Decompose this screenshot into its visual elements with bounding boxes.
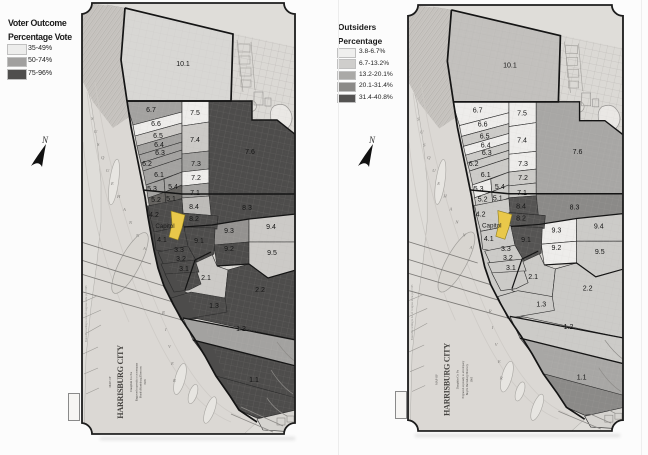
svg-text:5.1: 5.1 [166, 196, 176, 203]
svg-text:9.1: 9.1 [194, 238, 204, 245]
svg-text:Entered according to Act of Co: Entered according to Act of Congress in … [411, 284, 414, 340]
svg-text:R: R [172, 378, 176, 383]
svg-text:6.3: 6.3 [482, 150, 492, 157]
svg-text:7.1: 7.1 [517, 190, 527, 197]
svg-text:5.3: 5.3 [147, 186, 157, 193]
svg-text:7.5: 7.5 [190, 110, 200, 117]
svg-text:3.3: 3.3 [174, 247, 184, 254]
svg-text:7.6: 7.6 [573, 149, 583, 156]
svg-text:7.5: 7.5 [517, 111, 527, 118]
svg-text:10.1: 10.1 [176, 61, 190, 68]
svg-text:HARRISBURG CITY: HARRISBURG CITY [442, 343, 451, 416]
svg-text:E: E [497, 359, 501, 364]
svg-text:E: E [170, 361, 174, 366]
svg-text:9.4: 9.4 [266, 224, 276, 231]
svg-text:5.2: 5.2 [478, 197, 488, 204]
svg-text:6.3: 6.3 [155, 150, 165, 157]
svg-text:5.3: 5.3 [474, 186, 484, 193]
svg-text:6.4: 6.4 [481, 142, 491, 149]
svg-text:9.5: 9.5 [267, 250, 277, 257]
svg-text:7.6: 7.6 [245, 149, 255, 156]
svg-text:1.2: 1.2 [236, 326, 246, 333]
svg-text:H: H [116, 194, 121, 199]
svg-text:Capitol: Capitol [482, 222, 501, 229]
svg-text:HARRISBURG CITY: HARRISBURG CITY [116, 345, 125, 419]
svg-text:R: R [499, 376, 503, 381]
svg-text:2.2: 2.2 [255, 287, 265, 294]
svg-text:2.2: 2.2 [583, 286, 593, 293]
svg-text:E: E [110, 181, 114, 186]
svg-text:10.1: 10.1 [503, 62, 517, 69]
svg-text:3.1: 3.1 [506, 265, 516, 272]
svg-text:6.7: 6.7 [473, 108, 483, 115]
svg-text:Dauphin Co Pa: Dauphin Co Pa [455, 369, 459, 389]
svg-text:9.3: 9.3 [224, 228, 234, 235]
svg-text:4.2: 4.2 [476, 212, 486, 219]
svg-text:Entered according to Act of Co: Entered according to Act of Congress in … [85, 285, 88, 342]
svg-text:6.6: 6.6 [478, 122, 488, 129]
svg-text:1.3: 1.3 [536, 302, 546, 309]
svg-text:Boyd's Harrisburg Directory: Boyd's Harrisburg Directory [140, 365, 143, 397]
svg-text:A: A [448, 207, 452, 212]
svg-text:6.5: 6.5 [480, 133, 490, 140]
svg-text:9.4: 9.4 [594, 223, 604, 230]
svg-text:2.1: 2.1 [528, 274, 538, 281]
svg-text:3.2: 3.2 [503, 255, 513, 262]
svg-text:3.3: 3.3 [501, 246, 511, 253]
svg-text:7.4: 7.4 [190, 137, 200, 144]
svg-text:6.4: 6.4 [154, 142, 164, 149]
svg-text:8.2: 8.2 [189, 216, 199, 223]
svg-text:9.2: 9.2 [224, 246, 234, 253]
svg-text:8.3: 8.3 [242, 205, 252, 212]
svg-text:1905: 1905 [471, 376, 474, 382]
svg-text:8.4: 8.4 [189, 204, 199, 211]
svg-text:6.1: 6.1 [481, 172, 491, 179]
svg-text:4.1: 4.1 [157, 237, 167, 244]
svg-text:6.2: 6.2 [469, 161, 479, 168]
svg-text:5.1: 5.1 [493, 196, 503, 203]
svg-text:A: A [469, 245, 473, 250]
svg-text:H: H [442, 194, 447, 199]
svg-text:9.2: 9.2 [551, 245, 561, 252]
svg-text:Boyd's Harrisburg Directory: Boyd's Harrisburg Directory [466, 363, 469, 395]
svg-text:N: N [368, 135, 376, 145]
svg-text:4.1: 4.1 [484, 236, 494, 243]
svg-text:1905: 1905 [144, 379, 147, 385]
svg-text:3.2: 3.2 [176, 256, 186, 263]
svg-text:7.2: 7.2 [518, 175, 528, 182]
svg-text:8.2: 8.2 [516, 216, 526, 223]
svg-text:4.2: 4.2 [149, 212, 159, 219]
svg-text:5.4: 5.4 [168, 184, 178, 191]
svg-text:R: R [161, 310, 165, 315]
svg-text:6.6: 6.6 [151, 121, 161, 128]
svg-text:1.1: 1.1 [577, 375, 587, 382]
svg-text:7.3: 7.3 [191, 161, 201, 168]
svg-text:R: R [488, 308, 492, 313]
svg-text:Dauphin Co Pa: Dauphin Co Pa [129, 372, 133, 392]
svg-text:6.2: 6.2 [142, 161, 152, 168]
svg-text:6.5: 6.5 [153, 133, 163, 140]
svg-text:1.3: 1.3 [209, 303, 219, 310]
svg-text:1.1: 1.1 [249, 377, 259, 384]
svg-text:7.1: 7.1 [190, 190, 200, 197]
svg-text:6.7: 6.7 [146, 107, 156, 114]
svg-text:7.3: 7.3 [518, 161, 528, 168]
svg-text:Capitol: Capitol [155, 223, 174, 230]
svg-text:2.1: 2.1 [201, 275, 211, 282]
svg-text:MAP OF: MAP OF [108, 376, 112, 387]
svg-text:7.2: 7.2 [191, 175, 201, 182]
svg-text:Engraved expressly to accompan: Engraved expressly to accompany [136, 362, 139, 401]
svg-text:6.1: 6.1 [154, 172, 164, 179]
svg-text:5.4: 5.4 [495, 184, 505, 191]
svg-text:7.4: 7.4 [517, 137, 527, 144]
svg-text:9.3: 9.3 [551, 227, 561, 234]
svg-text:1.2: 1.2 [564, 324, 574, 331]
svg-text:Engraved expressly to accompan: Engraved expressly to accompany [462, 360, 465, 398]
svg-text:8.4: 8.4 [516, 204, 526, 211]
svg-text:9.1: 9.1 [521, 237, 531, 244]
svg-text:E: E [436, 181, 440, 186]
svg-text:A: A [122, 207, 126, 212]
svg-text:3.1: 3.1 [179, 266, 189, 273]
svg-text:9.5: 9.5 [595, 249, 605, 256]
svg-text:5.2: 5.2 [151, 197, 161, 204]
svg-text:8.3: 8.3 [570, 205, 580, 212]
svg-text:A: A [142, 246, 146, 251]
svg-text:N: N [41, 135, 49, 145]
svg-text:MAP OF: MAP OF [434, 374, 438, 385]
